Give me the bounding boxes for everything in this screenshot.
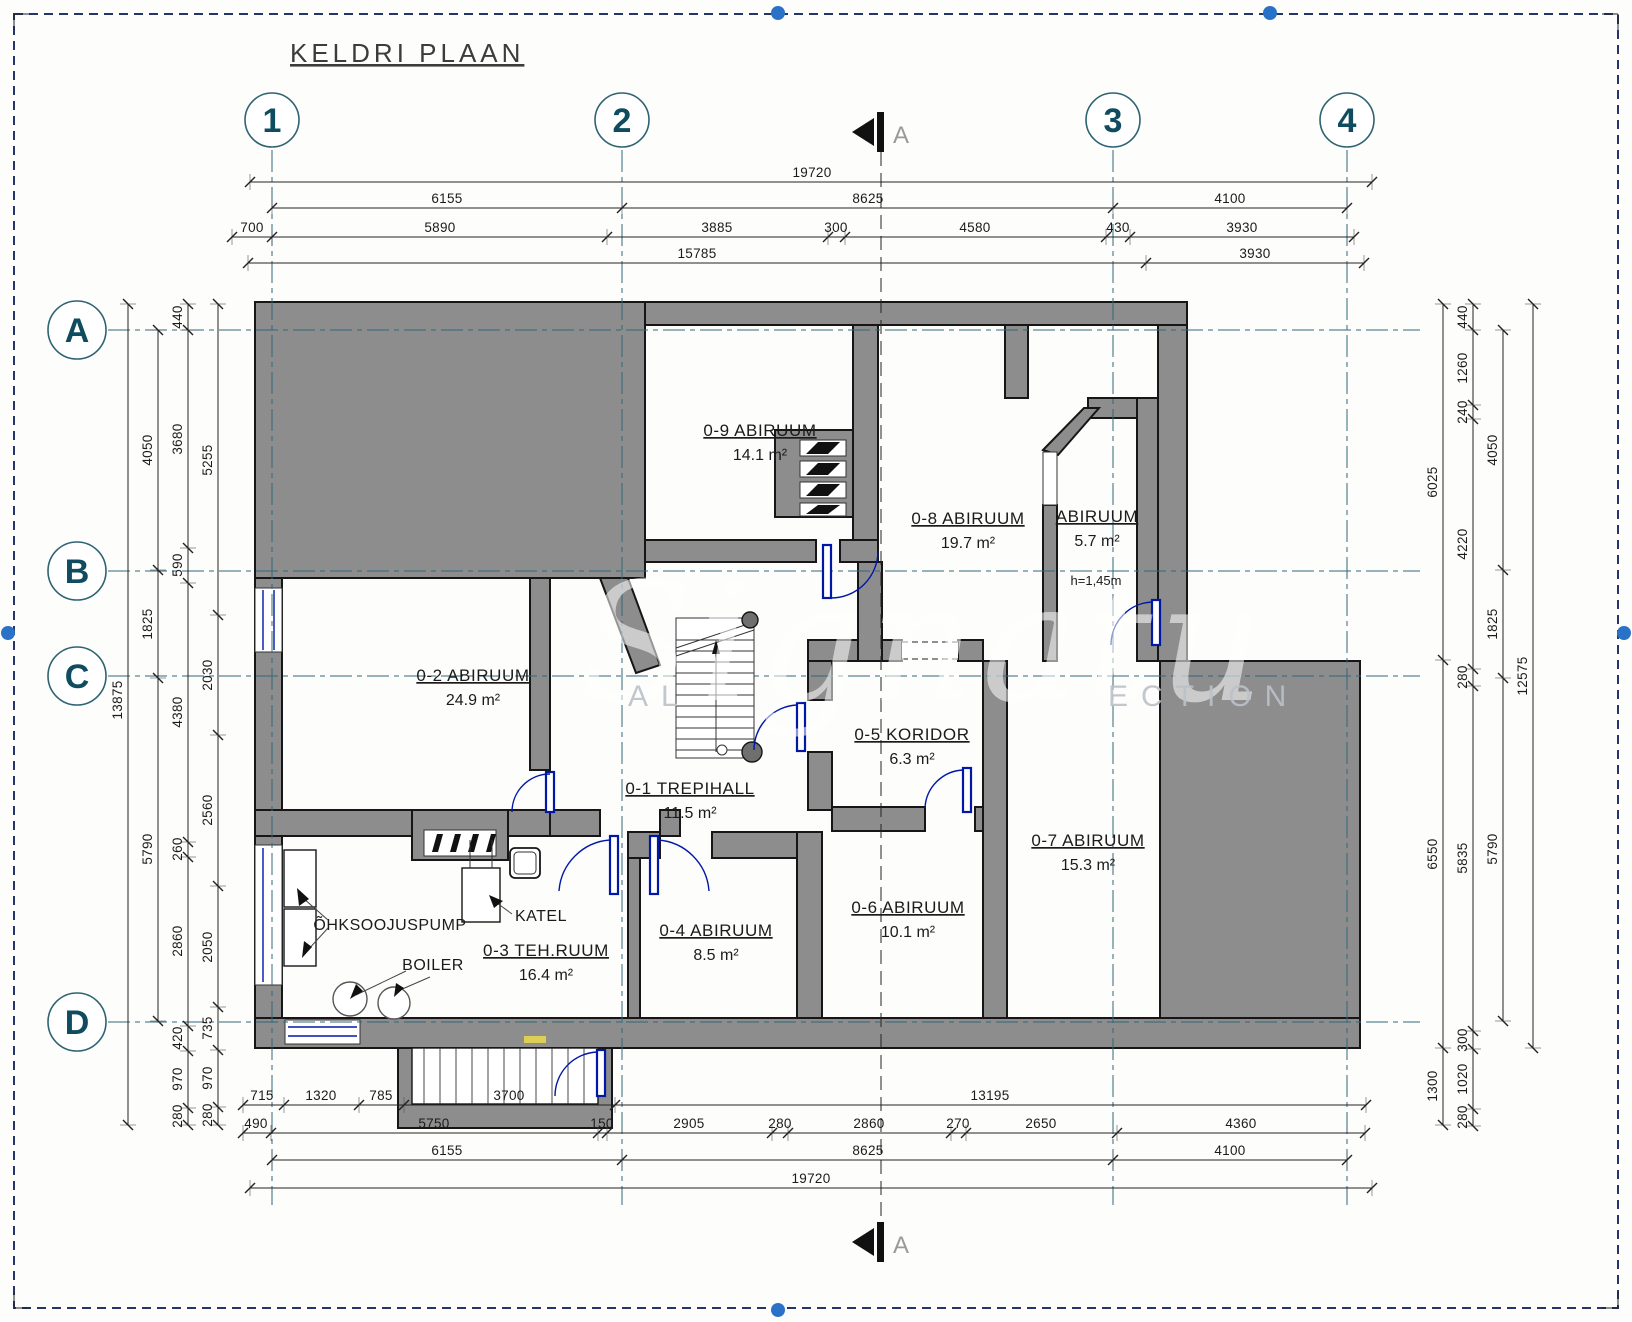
room-label: 0-2 ABIRUUM24.9 m² — [416, 666, 529, 709]
dimension-label: 2050 — [200, 931, 215, 962]
stair-handrail-end — [717, 745, 727, 755]
grid-row-c: C — [65, 658, 90, 696]
wall-room09-right — [853, 325, 878, 540]
room-label: 0-8 ABIRUUM19.7 m² — [911, 509, 1024, 552]
page-marker-dot — [1263, 6, 1277, 20]
dimension-label: 1020 — [1455, 1063, 1470, 1094]
dimension-label: 970 — [170, 1067, 185, 1090]
dimension-label: 280 — [1455, 665, 1470, 688]
room-label: 0-7 ABIRUUM15.3 m² — [1031, 831, 1144, 874]
window — [1043, 452, 1057, 505]
room-name: ABIRUUM — [1056, 507, 1139, 526]
dimension-chain: 405018255790 — [1485, 325, 1511, 1026]
watermark: Signatu AL ECTION — [580, 547, 1299, 739]
boiler-tank — [378, 987, 410, 1019]
room-area: 6.3 m² — [889, 751, 935, 768]
dimension-label: 260 — [170, 837, 185, 860]
dimension-label: 785 — [369, 1088, 392, 1103]
window — [255, 845, 282, 985]
highlight-mark — [524, 1036, 546, 1043]
dimension-label: 6155 — [431, 1143, 462, 1158]
dimension-chain: 440368059043802602860420970280 — [170, 299, 196, 1130]
dimension-label: 5255 — [200, 444, 215, 475]
dimension-label: 12575 — [1515, 656, 1530, 695]
wall-koridor-left — [808, 752, 832, 810]
page-marker-dot — [771, 1303, 785, 1317]
room-name: 0-2 ABIRUUM — [416, 666, 529, 685]
dimension-label: 6155 — [431, 191, 462, 206]
grid-col-3: 3 — [1104, 102, 1123, 140]
dimension-label: 13195 — [970, 1088, 1009, 1103]
dimension-label: 240 — [1455, 400, 1470, 423]
room-name: 0-9 ABIRUUM — [703, 421, 816, 440]
dimension-label: 430 — [1106, 220, 1129, 235]
room-name: 0-6 ABIRUUM — [851, 898, 964, 917]
stair-post — [742, 742, 762, 762]
heat-pump-label: ÕHKSOOJUSPUMP — [313, 914, 466, 934]
dimension-label: 280 — [200, 1103, 215, 1126]
dimension-label: 8625 — [852, 191, 883, 206]
dimension-label: 440 — [1455, 305, 1470, 328]
room-name: 0-4 ABIRUUM — [659, 921, 772, 940]
dimension-label: 440 — [170, 305, 185, 328]
grid-row-d: D — [65, 1004, 90, 1042]
grid-col-1: 1 — [263, 102, 282, 140]
watermark-caps-right: ECTION — [1108, 680, 1299, 713]
dimension-label: 4050 — [1485, 434, 1500, 465]
grid-col-2: 2 — [613, 102, 632, 140]
wall-hall-bottom — [550, 810, 600, 836]
dimension-label: 3930 — [1226, 220, 1257, 235]
grid-row-a: A — [65, 312, 90, 350]
dimension-label: 4100 — [1214, 191, 1245, 206]
grid-col-4: 4 — [1338, 102, 1357, 140]
dimension-label: 3680 — [170, 423, 185, 454]
dimension-label: 4100 — [1214, 1143, 1245, 1158]
dimension-label: 2030 — [200, 659, 215, 690]
dimension-label: 19720 — [792, 165, 831, 180]
dimension-label: 2560 — [200, 794, 215, 825]
dimension-chain: 5255203025602050735970280 — [200, 299, 226, 1130]
dimension-label: 590 — [170, 553, 185, 576]
dimension-label: 150 — [590, 1116, 613, 1131]
window — [255, 588, 282, 652]
dimension-chain: 4401260240422028058353001020280 — [1455, 299, 1481, 1131]
wall-room04-06 — [797, 832, 822, 1018]
dimension-label: 3885 — [701, 220, 732, 235]
dimension-chain: 7005890388530045804303930 — [227, 220, 1359, 245]
dimension-chain: 157853930 — [243, 246, 1369, 271]
dimension-chain: 12575 — [1515, 299, 1541, 1053]
dimension-label: 1320 — [305, 1088, 336, 1103]
dimension-label: 970 — [200, 1066, 215, 1089]
dimension-label: 270 — [946, 1116, 969, 1131]
dimension-label: 2860 — [170, 925, 185, 956]
dimension-chain: 615586254100 — [267, 1143, 1352, 1168]
dimension-label: 4050 — [140, 434, 155, 465]
grid-row-b: B — [65, 553, 90, 591]
dimension-label: 4380 — [170, 696, 185, 727]
dimension-label: 715 — [250, 1088, 273, 1103]
wall-room02-right — [530, 578, 550, 770]
window — [285, 1020, 360, 1044]
dimension-label: 5750 — [418, 1116, 449, 1131]
furnace-katel — [462, 868, 500, 922]
dimension-label: 1825 — [1485, 608, 1500, 639]
room-name: 0-7 ABIRUUM — [1031, 831, 1144, 850]
section-label-top: A — [893, 122, 909, 149]
room-label: 0-4 ABIRUUM8.5 m² — [659, 921, 772, 964]
room-area: 11.5 m² — [663, 805, 717, 822]
dimension-label: 420 — [170, 1026, 185, 1049]
dimension-label: 5790 — [1485, 833, 1500, 864]
heat-pump-unit — [284, 909, 316, 966]
dimension-label: 15785 — [677, 246, 716, 261]
drawing-title: KELDRI PLAAN — [290, 38, 524, 68]
door-leaf — [546, 772, 554, 812]
dimension-label: 3930 — [1239, 246, 1270, 261]
boiler-label: BOILER — [402, 957, 464, 974]
dimension-label: 2650 — [1025, 1116, 1056, 1131]
dimension-label: 4580 — [959, 220, 990, 235]
dimension-label: 13875 — [110, 680, 125, 719]
dimension-label: 280 — [170, 1104, 185, 1127]
room-area: 14.1 m² — [733, 447, 788, 464]
dimension-label: 1260 — [1455, 352, 1470, 383]
dimension-label: 6550 — [1425, 838, 1440, 869]
watermark-caps-left: AL — [628, 680, 691, 713]
dimension-label: 5890 — [424, 220, 455, 235]
dimension-label: 4360 — [1225, 1116, 1256, 1131]
wall-top — [645, 302, 1187, 325]
door-leaf — [610, 836, 618, 894]
door-leaf — [597, 1050, 605, 1096]
dimension-label: 5835 — [1455, 842, 1470, 873]
page-marker-dot — [1, 626, 15, 640]
floor-plan-page: KELDRI PLAAN — [0, 0, 1632, 1322]
room-area: 24.9 m² — [446, 692, 501, 709]
wall-chamfer — [1043, 408, 1099, 455]
room-name: 0-8 ABIRUUM — [911, 509, 1024, 528]
dimension-label: 700 — [240, 220, 263, 235]
dimension-label: 4220 — [1455, 528, 1470, 559]
room-label: 0-1 TREPIHALL11.5 m² — [625, 779, 754, 822]
dimension-label: 300 — [824, 220, 847, 235]
room-name: 0-1 TREPIHALL — [625, 779, 754, 798]
room-name: 0-3 TEH.RUUM — [483, 941, 609, 960]
dimension-label: 735 — [200, 1016, 215, 1039]
door-leaf — [650, 836, 658, 894]
room-label: 0-6 ABIRUUM10.1 m² — [851, 898, 964, 941]
room-area: 10.1 m² — [881, 924, 936, 941]
floor-plan-drawing: KELDRI PLAAN — [0, 0, 1632, 1322]
equipment: ÕHKSOOJUSPUMP KATEL BOILER — [284, 840, 567, 1019]
dimension-chain: 615586254100 — [267, 191, 1352, 216]
dimension-chain: 19720 — [245, 1171, 1377, 1196]
room-label: 0-3 TEH.RUUM16.4 m² — [483, 941, 609, 984]
dimension-label: 3700 — [493, 1088, 524, 1103]
dimension-label: 2905 — [673, 1116, 704, 1131]
dimension-label: 6025 — [1425, 466, 1440, 497]
dimension-label: 1300 — [1425, 1070, 1440, 1101]
dimension-label: 5790 — [140, 833, 155, 864]
dimension-label: 280 — [768, 1116, 791, 1131]
wall-room04-left — [628, 858, 640, 1018]
wall-solid-block-topleft — [255, 302, 645, 578]
dimension-chain: 13875 — [110, 299, 136, 1130]
room-area: 16.4 m² — [519, 967, 574, 984]
room-area: 15.3 m² — [1061, 857, 1116, 874]
dimension-label: 2860 — [853, 1116, 884, 1131]
dimension-label: 8625 — [852, 1143, 883, 1158]
page-marker-dot — [771, 6, 785, 20]
dimension-label: 1825 — [140, 608, 155, 639]
dimension-label: 280 — [1455, 1105, 1470, 1128]
wall-stub-08 — [1005, 325, 1028, 398]
page-marker-dot — [1617, 626, 1631, 640]
dimension-chain: 602565501300 — [1425, 299, 1451, 1130]
dimension-label: 300 — [1455, 1028, 1470, 1051]
room-area: 8.5 m² — [693, 947, 739, 964]
dimension-label: 490 — [244, 1116, 267, 1131]
wall-koridor-bottom — [832, 807, 925, 831]
section-label-bottom: A — [893, 1232, 909, 1259]
dimension-chain: 19720 — [245, 165, 1377, 190]
furnace-label: KATEL — [515, 908, 567, 925]
dimension-label: 19720 — [791, 1171, 830, 1186]
door-leaf — [963, 768, 971, 812]
